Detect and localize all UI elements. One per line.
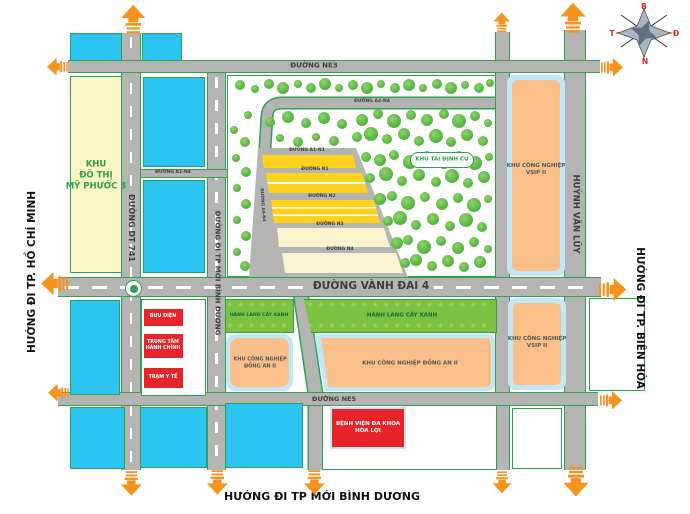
parcel-south-3 <box>225 403 303 468</box>
tree-icon <box>446 137 456 147</box>
tree-icon <box>452 242 464 254</box>
tree-icon <box>264 79 274 89</box>
parcel-blue-a <box>143 77 205 167</box>
tree-icon <box>389 150 399 160</box>
tree-icon <box>301 118 311 128</box>
tree-icon <box>470 111 480 121</box>
tree-icon <box>445 82 457 94</box>
direction-arrow-down <box>304 470 325 495</box>
zone-tai-dinh-cu-label: KHU TÁI ĐỊNH CƯ <box>415 156 468 163</box>
parcel-north-2 <box>142 33 182 61</box>
tree-icon <box>478 136 488 146</box>
direction-arrow-down <box>207 470 228 495</box>
tree-icon <box>312 133 320 141</box>
edge-label-right: HƯỚNG ĐI TP. BIÊN HÒA <box>632 247 646 389</box>
tree-icon <box>452 114 466 128</box>
tree-icon <box>459 213 473 227</box>
direction-arrow-up <box>121 5 145 34</box>
tree-icon <box>365 173 375 183</box>
direction-arrow-right <box>601 58 623 77</box>
tree-icon <box>413 169 425 181</box>
tree-icon <box>337 119 347 129</box>
tree-icon <box>445 169 459 183</box>
tree-icon <box>352 132 362 142</box>
tree-icon <box>393 211 407 225</box>
zone-tram-y-te-label: TRẠM Y TẾ <box>149 375 178 381</box>
road-ne3-label: ĐƯỜNG NE3 <box>290 61 337 70</box>
tree-icon <box>477 222 487 232</box>
tree-icon <box>235 80 245 90</box>
parcel-south-4 <box>512 408 562 469</box>
street-label-n2: ĐƯỜNG N2 <box>308 194 335 200</box>
tree-icon <box>233 248 241 256</box>
tree-icon <box>474 83 484 93</box>
tree-icon <box>374 154 386 166</box>
tree-icon <box>329 136 339 146</box>
zone-my-phuoc-3-label: KHU ĐÔ THỊ MỸ PHƯỚC 3 <box>66 159 127 192</box>
tree-icon <box>387 191 397 201</box>
tree-icon <box>461 129 473 141</box>
tree-icon <box>453 193 463 203</box>
zone-hanh-lang-1-label: HÀNH LANG CÂY XANH <box>230 313 289 319</box>
tree-icon <box>427 213 439 225</box>
zone-vsip-lower-label: KHU CÔNG NGHIỆP VSIP II <box>508 336 567 350</box>
zone-dong-an-1-label: KHU CÔNG NGHIỆP ĐỒNG AN II <box>233 357 286 370</box>
tree-icon <box>459 262 469 272</box>
tree-icon <box>436 198 448 210</box>
tree-icon <box>293 137 303 147</box>
direction-arrow-up <box>494 12 511 32</box>
tree-icon <box>265 117 275 127</box>
road-a4-n4-label: ĐƯỜNG A4-N4 <box>354 99 390 105</box>
road-vanh-dai-4-label: ĐƯỜNG VÀNH ĐAI 4 <box>308 280 434 294</box>
tree-icon <box>276 134 284 142</box>
corridor-pattern: ✳✳✳✳✳✳ <box>226 302 293 309</box>
zone-benh-vien-label: BỆNH VIỆN ĐA KHOA HÒA LỢI <box>336 421 400 435</box>
tree-icon <box>467 198 481 212</box>
tree-icon <box>391 237 403 249</box>
tree-icon <box>356 114 368 126</box>
tree-icon <box>240 261 250 271</box>
road-dt-741-label: ĐƯỜNG DT 741 <box>126 194 136 262</box>
corridor-pattern: ✳✳✳✳✳✳✳✳✳✳✳✳✳✳✳✳✳ <box>303 323 496 330</box>
tree-icon <box>230 126 238 134</box>
tree-icon <box>442 255 454 267</box>
tree-icon <box>484 245 492 253</box>
edge-label-left: HƯỚNG ĐI TP. HỒ CHÍ MINH <box>26 191 40 353</box>
street-label-n1: ĐƯỜNG N1 <box>301 167 328 173</box>
zone-vsip-upper-label: KHU CÔNG NGHIỆP VSIP II <box>507 163 566 177</box>
roundabout-center <box>130 285 138 293</box>
tree-icon <box>251 85 259 93</box>
direction-arrow-down <box>121 471 142 496</box>
tree-icon <box>421 114 433 126</box>
compass-north-label: B <box>641 2 647 11</box>
tree-icon <box>429 129 443 143</box>
direction-arrow-left <box>48 384 69 402</box>
compass-rose: B N Đ T <box>607 1 681 65</box>
lot-row-4 <box>277 228 390 247</box>
direction-arrow-up <box>560 3 585 33</box>
lot-row-2 <box>266 173 368 193</box>
lot-row-3 <box>271 200 380 223</box>
road-huynh-van-luy-label: HUỲNH VĂN LŨY <box>569 174 580 253</box>
tree-icon <box>403 235 413 245</box>
tree-icon <box>241 167 251 177</box>
compass-east-label: Đ <box>673 29 679 38</box>
tree-icon <box>348 80 358 90</box>
tree-icon <box>420 192 430 202</box>
tree-icon <box>485 153 493 161</box>
road-a1-n4-label: ĐƯỜNG A1-N4 <box>155 170 191 176</box>
tree-icon <box>382 134 392 144</box>
parcel-north-1 <box>70 33 122 61</box>
direction-arrow-down <box>563 467 588 497</box>
direction-arrow-left <box>41 272 68 295</box>
tree-icon <box>461 81 469 89</box>
tree-icon <box>294 80 302 88</box>
tree-icon <box>233 184 241 192</box>
tree-icon <box>419 84 427 92</box>
tree-icon <box>400 258 410 268</box>
street-label-a1n1: ĐƯỜNG A1-N1 <box>289 148 325 154</box>
tree-icon <box>319 78 331 90</box>
tree-icon <box>361 152 371 162</box>
tree-icon <box>410 254 422 266</box>
tree-icon <box>445 221 455 231</box>
tree-icon <box>390 83 400 93</box>
lot-row-5 <box>282 253 403 273</box>
tree-icon <box>383 216 393 226</box>
tree-icon <box>277 82 289 94</box>
tree-icon <box>478 171 490 183</box>
direction-arrow-left <box>47 58 68 76</box>
tree-icon <box>417 240 431 254</box>
zone-trung-tam-label: TRUNG TÂM HÀNH CHÍNH <box>146 340 181 352</box>
tree-icon <box>377 80 385 88</box>
tree-icon <box>373 109 383 119</box>
tree-icon <box>306 83 316 93</box>
direction-arrow-down <box>493 471 512 493</box>
roundabout <box>125 280 142 297</box>
tree-icon <box>414 136 424 146</box>
compass-west-label: T <box>609 29 615 38</box>
tree-icon <box>335 84 343 92</box>
tree-icon <box>244 111 252 119</box>
tree-icon <box>432 79 442 89</box>
tree-icon <box>361 82 373 94</box>
tree-icon <box>364 127 378 141</box>
lot-row-1 <box>262 155 356 168</box>
tree-icon <box>427 261 437 271</box>
tree-icon <box>397 176 407 186</box>
tree-icon <box>240 137 250 147</box>
tree-icon <box>436 236 446 246</box>
tree-icon <box>474 256 486 268</box>
tree-icon <box>469 237 479 247</box>
parcel-south-2 <box>140 407 207 468</box>
parcel-blue-b <box>143 180 205 273</box>
tree-icon <box>233 216 241 224</box>
tree-icon <box>439 109 449 119</box>
tree-icon <box>374 193 386 205</box>
tree-icon <box>484 119 492 127</box>
tree-icon <box>282 111 294 123</box>
zone-dong-an-2-label: KHU CÔNG NGHIỆP ĐỒNG AN II <box>362 360 458 367</box>
tree-icon <box>486 79 494 87</box>
zone-buu-dien-label: BƯU ĐIỆN <box>150 314 176 320</box>
tree-icon <box>398 128 410 140</box>
tree-icon <box>403 79 415 91</box>
road-binh-duong-label: ĐƯỜNG ĐI TP MỚI BÌNH DƯƠNG <box>212 211 221 336</box>
compass-south-label: N <box>642 57 648 65</box>
street-label-n4: ĐƯỜNG N4 <box>326 247 353 253</box>
tree-icon <box>411 220 421 230</box>
planning-map: KHU ĐÔ THỊ MỸ PHƯỚC 3 ĐƯỜNG A1-N1 ĐƯỜNG … <box>0 0 690 514</box>
tree-icon <box>241 231 251 241</box>
corridor-pattern: ✳✳✳✳✳✳ <box>226 323 293 330</box>
tree-icon <box>318 112 330 124</box>
tree-icon <box>379 167 393 181</box>
corridor-pattern: ✳✳✳✳✳✳✳✳✳✳✳✳✳✳✳✳✳ <box>303 302 496 309</box>
tree-icon <box>463 178 473 188</box>
tree-icon <box>387 114 401 128</box>
street-label-n3: ĐƯỜNG N3 <box>316 222 343 228</box>
tree-icon <box>401 196 415 210</box>
direction-arrow-right <box>600 391 622 410</box>
tree-icon <box>431 177 441 187</box>
tree-icon <box>484 195 492 203</box>
tree-icon <box>241 199 251 209</box>
road-ne5-label: ĐƯỜNG NE5 <box>312 395 356 403</box>
parcel-blue-west <box>70 300 120 395</box>
tree-icon <box>232 154 240 162</box>
tree-icon <box>406 110 416 120</box>
zone-hanh-lang-2-label: HÀNH LANG CÂY XANH <box>367 312 437 319</box>
parcel-south-1 <box>70 407 125 469</box>
direction-arrow-right <box>599 278 626 301</box>
